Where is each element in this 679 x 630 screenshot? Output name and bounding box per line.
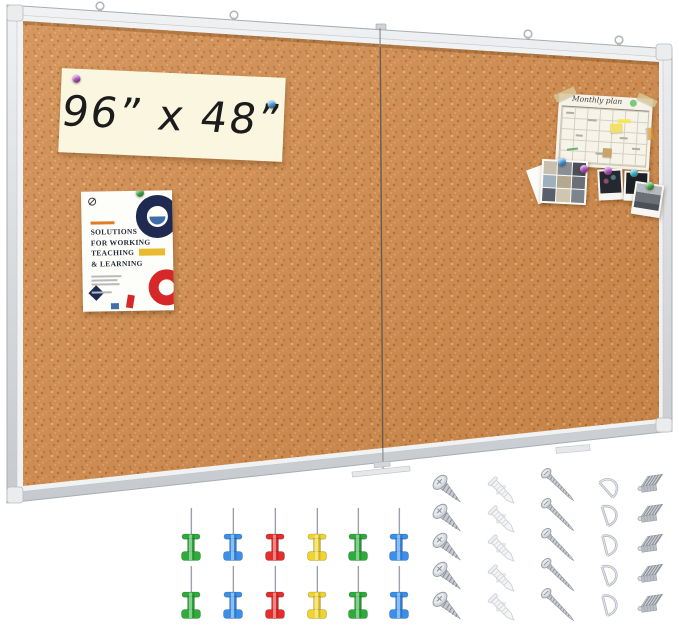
purple-pin-icon [580, 165, 588, 173]
poster-logo-icon [89, 198, 96, 205]
monthly-calendar: Monthly plan [555, 93, 653, 171]
collage-thumb [543, 161, 557, 174]
poster-title: SOLUTIONS FOR WORKING TEACHING & LEARNIN… [91, 227, 151, 270]
blue-bar-shape [111, 303, 119, 309]
product-photo: 96” x 48” SOLUTIONS FOR WORKING TEACHING… [0, 0, 679, 630]
corner-cap [7, 5, 23, 21]
calendar-grid [558, 105, 649, 167]
corner-cap [656, 418, 672, 432]
green-sticker-icon [630, 100, 637, 107]
teal-pin-icon [630, 169, 638, 177]
red-ring-shape [153, 274, 174, 300]
half-disc-shape [149, 216, 165, 224]
yellow-sticky-note [610, 123, 622, 133]
corner-cap [656, 44, 672, 60]
green-pin-icon [646, 182, 654, 190]
bottom-right-clip [556, 445, 590, 454]
collage-thumb [556, 189, 570, 202]
bottom-center-clip [352, 466, 410, 477]
collage-thumb [557, 175, 571, 188]
yellow-highlight [618, 119, 631, 123]
blue-pin-icon [558, 158, 566, 166]
poster-title-line: & LEARNING [91, 258, 151, 270]
red-bar-shape [126, 294, 135, 308]
poster-title-line: FOR WORKING [91, 237, 151, 249]
size-sign: 96” x 48” [58, 68, 285, 162]
purple-pin-icon [604, 167, 612, 175]
promo-poster: SOLUTIONS FOR WORKING TEACHING & LEARNIN… [81, 190, 174, 312]
corner-cap [7, 487, 23, 503]
poster-brand-mark [90, 221, 114, 224]
collage-thumb [543, 175, 557, 188]
calendar-title: Monthly plan [572, 94, 623, 106]
size-sign-label: 96” x 48” [58, 86, 286, 144]
collage-thumb [571, 176, 585, 189]
purple-pin-icon [72, 75, 80, 83]
collage-thumb [542, 188, 556, 201]
collage-thumb [571, 190, 585, 203]
